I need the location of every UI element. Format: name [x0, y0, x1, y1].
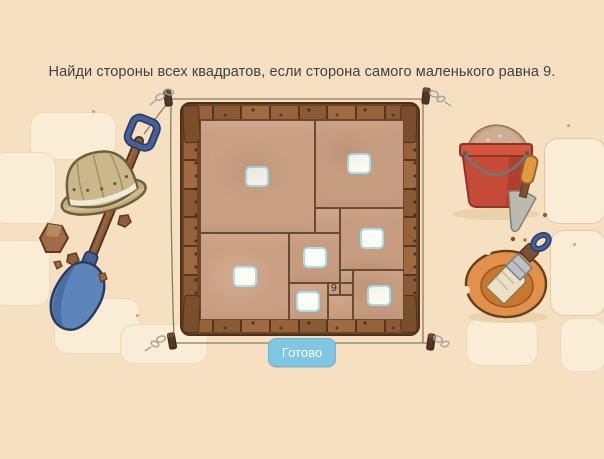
- given-side-label: 9: [331, 284, 337, 294]
- square-given-nine: 9: [328, 283, 341, 296]
- speckle: [567, 124, 570, 127]
- square-nine-lower: [340, 283, 353, 296]
- parchment-patch: [550, 230, 604, 316]
- answer-input-top-right[interactable]: [347, 153, 371, 174]
- parchment-patch: [0, 152, 56, 224]
- game-stage: Найди стороны всех квадратов, если сторо…: [0, 0, 604, 459]
- answer-input-center[interactable]: [303, 247, 327, 268]
- square-bottom-right: [353, 270, 404, 320]
- answer-input-right-mid[interactable]: [360, 228, 384, 249]
- done-button[interactable]: Готово: [268, 338, 336, 367]
- parchment-patch: [0, 240, 50, 306]
- square-top-right: [315, 120, 404, 208]
- square-nine-upper: [340, 270, 353, 283]
- parchment-patch: [560, 318, 604, 372]
- speckle: [136, 314, 139, 317]
- plate-icon: [462, 232, 551, 323]
- puzzle-title: Найди стороны всех квадратов, если сторо…: [0, 64, 604, 80]
- speckle: [573, 243, 576, 246]
- square-bottom-left: [200, 233, 289, 321]
- answer-input-bottom-right[interactable]: [367, 285, 391, 306]
- answer-input-bottom-left[interactable]: [233, 266, 257, 287]
- square-right-mid: [340, 208, 404, 271]
- parchment-patch: [544, 138, 604, 224]
- square-bottom-center: [289, 283, 327, 321]
- speckle: [92, 110, 95, 113]
- answer-input-bottom-center[interactable]: [296, 291, 320, 312]
- square-small-bottom: [328, 295, 354, 320]
- brush-icon: [486, 232, 551, 304]
- square-mid-small: [315, 208, 341, 233]
- square-top-left: [200, 120, 315, 233]
- wooden-frame: 9: [180, 102, 420, 336]
- square-center: [289, 233, 340, 283]
- frame-plank-top: [185, 106, 415, 119]
- trowel-icon: [500, 153, 546, 235]
- frame-plank-bottom: [185, 319, 415, 332]
- dig-grid: 9: [200, 120, 404, 320]
- frame-corner-block: [182, 105, 201, 144]
- answer-input-top-left[interactable]: [245, 166, 269, 187]
- frame-corner-block: [182, 295, 201, 334]
- rock-icon: [40, 215, 131, 282]
- sand-bucket-icon: [452, 125, 547, 234]
- parchment-patch: [466, 318, 538, 366]
